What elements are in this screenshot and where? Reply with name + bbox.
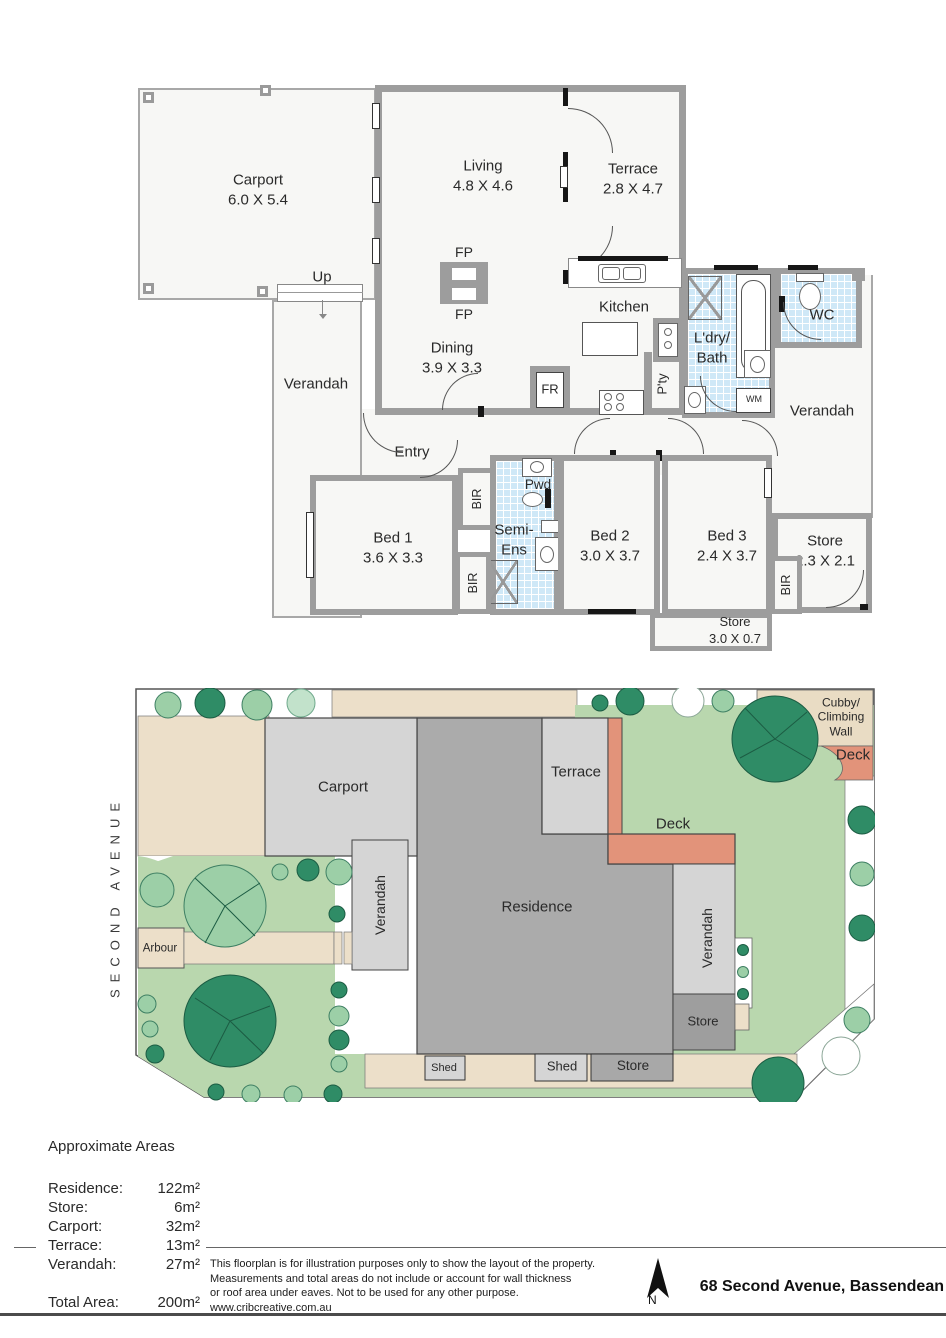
cubby-label: Cubby/ Climbing Wall (818, 695, 865, 738)
corner-post (852, 268, 865, 281)
cubby-line: Climbing (818, 710, 865, 724)
laundry-bath-label: L'dry/ Bath (694, 329, 730, 368)
areas-title: Approximate Areas (48, 1138, 175, 1155)
room-dims: 6.0 X 5.4 (228, 190, 288, 210)
basin-bowl (750, 356, 765, 373)
window (788, 265, 818, 270)
area-value: 27m² (166, 1256, 200, 1273)
pwd-basin-bowl (530, 461, 544, 473)
room-dims: 3.0 X 0.7 (709, 631, 761, 648)
area-label: Store: (48, 1199, 88, 1216)
disclaimer-link: www.cribcreative.com.au (210, 1301, 640, 1316)
area-value: 13m² (166, 1237, 200, 1254)
bir-label: BIR (465, 573, 481, 594)
kitchen-label: Kitchen (599, 297, 649, 317)
shower-icon (688, 276, 722, 320)
toilet-tank (796, 273, 824, 282)
store-right-label: Store 2.3 X 2.1 (795, 532, 855, 571)
fireplace-slot (452, 288, 476, 300)
burner (616, 403, 624, 411)
verandah-right-label: Verandah (790, 401, 854, 421)
carport-post (143, 283, 154, 294)
room-name: Bath (694, 348, 730, 368)
siteplan-graphic (135, 688, 875, 1102)
room-name: Terrace (603, 160, 663, 180)
area-row: Store: 6m² (48, 1199, 200, 1216)
window (372, 177, 380, 203)
kitchen-island (582, 322, 638, 356)
semi-ens-label: Semi- Ens (494, 521, 533, 560)
floorplan-page: Carport 6.0 X 5.4 Living 4.8 X 4.6 Terra… (0, 0, 946, 1338)
fp-label: FP (455, 305, 473, 323)
trough-bowl (688, 392, 701, 408)
site-residence-label: Residence (502, 897, 573, 917)
room-name: Dining (422, 339, 482, 359)
pantry-label: P'ty (655, 373, 672, 394)
area-label: Total Area: (48, 1294, 119, 1311)
door-jamb (478, 406, 484, 417)
carport-post (260, 85, 271, 96)
address: 68 Second Avenue, Bassendean (678, 1278, 944, 1296)
disclaimer-line: Measurements and total areas do not incl… (210, 1272, 640, 1287)
path-post (334, 932, 342, 964)
vanity-bowl (540, 546, 554, 563)
site-verandah-left-label: Verandah (371, 875, 389, 935)
deck-strip (608, 718, 622, 834)
driveway (138, 716, 269, 856)
door-jamb (860, 604, 868, 610)
site-carport-label: Carport (318, 777, 368, 797)
siteplan (135, 688, 875, 1102)
divider-dash (14, 1247, 36, 1248)
bir-label: BIR (469, 489, 485, 510)
fireplace-slot (452, 268, 476, 280)
pantry-wall (644, 352, 652, 414)
up-label: Up (312, 267, 331, 287)
burner (604, 403, 612, 411)
area-label: Terrace: (48, 1237, 102, 1254)
room-name: Carport (228, 171, 288, 191)
path-post (344, 932, 352, 964)
room-name: Store (795, 532, 855, 552)
carport-label: Carport 6.0 X 5.4 (228, 171, 288, 210)
area-value: 32m² (166, 1218, 200, 1235)
area-row: Carport: 32m² (48, 1218, 200, 1235)
window (306, 512, 314, 578)
window (578, 256, 668, 261)
area-label: Verandah: (48, 1256, 116, 1273)
street-label: SECOND AVENUE (108, 796, 125, 998)
up-arrow (322, 300, 323, 314)
room-name: Semi- (494, 521, 533, 541)
room-dims: 2.3 X 2.1 (795, 551, 855, 571)
living-label: Living 4.8 X 4.6 (453, 157, 513, 196)
window (764, 468, 772, 498)
step-line (277, 292, 363, 293)
shed2-label: Shed (547, 1059, 577, 1076)
verandah-left-label: Verandah (284, 374, 348, 394)
window (372, 238, 380, 264)
oven-knob (664, 328, 672, 336)
oven-knob (664, 341, 672, 349)
terrace-label: Terrace 2.8 X 4.7 (603, 160, 663, 199)
site-verandah-right-label: Verandah (698, 908, 716, 968)
window (372, 103, 380, 129)
site-terrace-label: Terrace (551, 762, 601, 782)
up-arrow-head (319, 314, 327, 319)
door-jamb (563, 152, 568, 166)
divider-line (206, 1247, 946, 1248)
fp-label: FP (455, 243, 473, 261)
area-value: 200m² (157, 1294, 200, 1311)
area-value: 122m² (157, 1180, 200, 1197)
fr-label: FR (541, 382, 558, 399)
room-dims: 2.8 X 4.7 (603, 179, 663, 199)
area-row: Verandah: 27m² (48, 1256, 200, 1273)
door-jamb (563, 188, 568, 202)
window (714, 265, 758, 270)
burner (604, 393, 612, 401)
room-name: Ens (494, 540, 533, 560)
area-row: Residence: 122m² (48, 1180, 200, 1197)
window (588, 609, 636, 614)
step-pad (735, 1004, 749, 1030)
disclaimer: This floorplan is for illustration purpo… (210, 1257, 640, 1315)
area-label: Carport: (48, 1218, 102, 1235)
shower-icon (488, 560, 518, 604)
sink-bowl (623, 267, 641, 280)
carport-post (257, 286, 268, 297)
window (560, 166, 568, 188)
bed1-label: Bed 1 3.6 X 3.3 (363, 529, 423, 568)
room-name: L'dry/ (694, 329, 730, 349)
arbour-label: Arbour (143, 942, 178, 957)
room-dims: 4.8 X 4.6 (453, 176, 513, 196)
disclaimer-line: This floorplan is for illustration purpo… (210, 1257, 640, 1272)
bir-label: BIR (778, 575, 794, 596)
room-name: Store (709, 614, 761, 631)
pale-trees (287, 689, 315, 717)
room-name: Bed 3 (697, 527, 757, 547)
room-name: Bed 2 (580, 527, 640, 547)
room-dims: 2.4 X 3.7 (697, 546, 757, 566)
site-deck-corner-label: Deck (836, 745, 870, 765)
pwd-toilet-tank (545, 489, 551, 508)
bed3-label: Bed 3 2.4 X 3.7 (697, 527, 757, 566)
bed2-label: Bed 2 3.0 X 3.7 (580, 527, 640, 566)
terrace-left-wall (563, 88, 568, 106)
disclaimer-line: or roof area under eaves. Not to be used… (210, 1286, 640, 1301)
area-total-row: Total Area: 200m² (48, 1294, 200, 1311)
deck-bar (608, 834, 735, 864)
room-name: Bed 1 (363, 529, 423, 549)
site-deck-label: Deck (656, 814, 690, 834)
area-value: 6m² (174, 1199, 200, 1216)
room-name: Living (453, 157, 513, 177)
carport-post (143, 92, 154, 103)
area-row: Terrace: 13m² (48, 1237, 200, 1254)
store-small-label: Store (617, 1057, 649, 1075)
north-label: N (648, 1293, 657, 1307)
store-bottom-label: Store 3.0 X 0.7 (709, 614, 761, 648)
shed1-label: Shed (431, 1061, 457, 1075)
driveway-strip (332, 690, 577, 717)
shelf (541, 520, 559, 533)
room-dims: 3.0 X 3.7 (580, 546, 640, 566)
cubby-line: Wall (818, 724, 865, 738)
room-dims: 3.6 X 3.3 (363, 548, 423, 568)
wm-label: WM (746, 394, 762, 406)
site-store-label: Store (687, 1014, 718, 1031)
burner (616, 393, 624, 401)
dining-label: Dining 3.9 X 3.3 (422, 339, 482, 378)
area-label: Residence: (48, 1180, 123, 1197)
sink-bowl (602, 267, 620, 280)
pwd-toilet-bowl (522, 492, 543, 507)
cubby-line: Cubby/ (818, 695, 865, 709)
